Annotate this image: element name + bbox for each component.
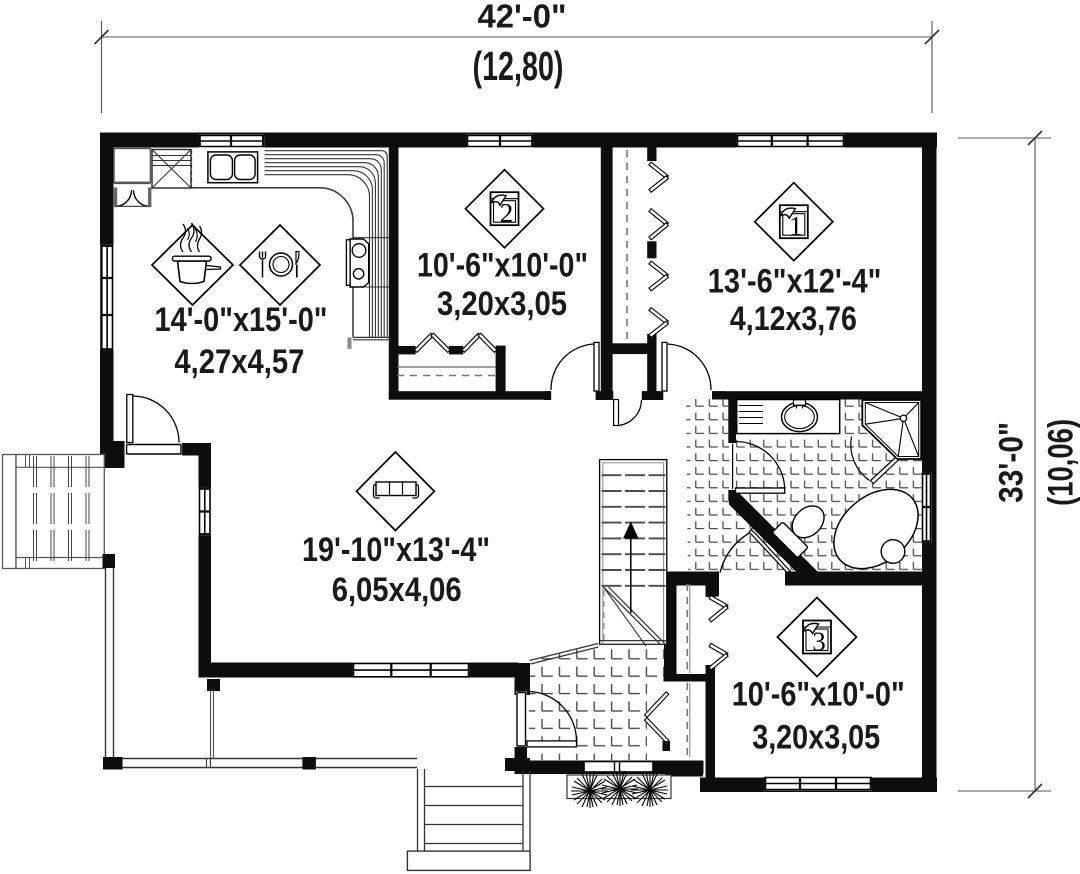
svg-text:19'-10"x13'-4": 19'-10"x13'-4" [302,531,490,569]
svg-text:6,05x4,06: 6,05x4,06 [332,571,462,609]
svg-text:14'-0"x15'-0": 14'-0"x15'-0" [155,301,328,339]
svg-text:13'-6"x12'-4": 13'-6"x12'-4" [708,263,882,301]
svg-text:10'-6"x10'-0": 10'-6"x10'-0" [417,247,588,285]
svg-text:3,20x3,05: 3,20x3,05 [752,719,880,757]
svg-text:1: 1 [789,211,803,241]
svg-text:3,20x3,05: 3,20x3,05 [437,285,567,323]
svg-text:42'-0": 42'-0" [478,0,567,35]
svg-text:2: 2 [500,198,514,228]
svg-text:(10,06): (10,06) [1041,419,1080,506]
svg-text:3: 3 [812,627,826,657]
svg-text:33'-0": 33'-0" [993,422,1031,503]
svg-text:10'-6"x10'-0": 10'-6"x10'-0" [732,676,905,714]
svg-text:4,27x4,57: 4,27x4,57 [174,343,304,381]
svg-text:(12,80): (12,80) [473,43,564,89]
svg-text:4,12x3,76: 4,12x3,76 [730,300,857,338]
